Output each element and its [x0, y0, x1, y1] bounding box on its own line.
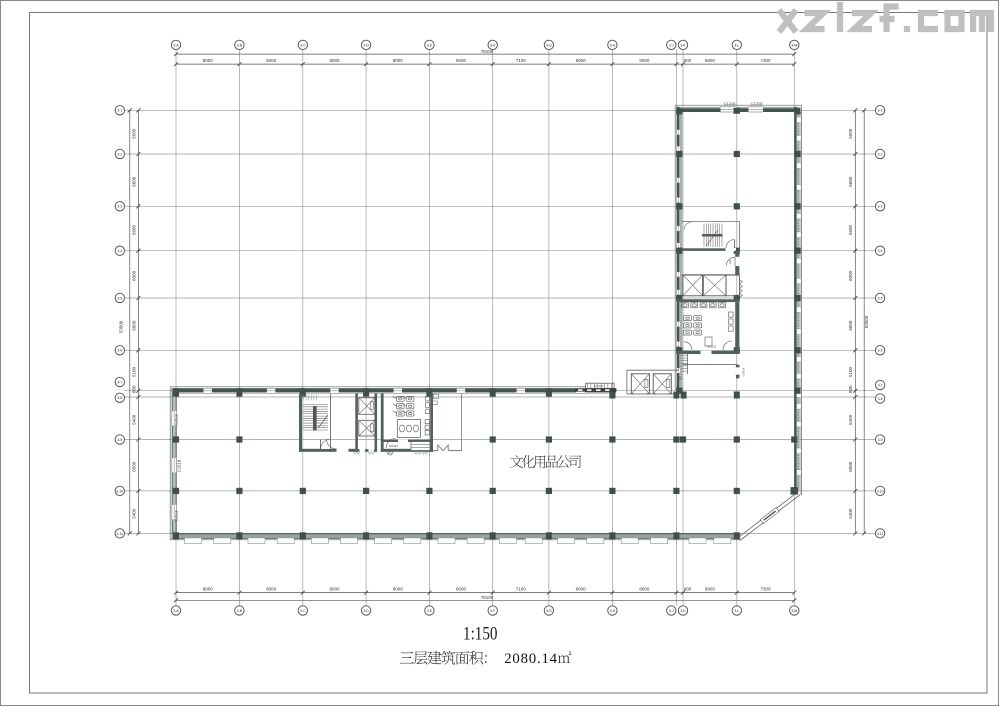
svg-text:3-J: 3-J: [669, 609, 674, 613]
svg-text:6800: 6800: [705, 587, 716, 592]
svg-text:3-10: 3-10: [877, 489, 884, 493]
svg-text:53500: 53500: [864, 315, 869, 328]
svg-text:C1518: C1518: [175, 510, 179, 521]
svg-text:3-8: 3-8: [117, 396, 122, 400]
svg-text:5400: 5400: [848, 508, 853, 519]
svg-text:3-C: 3-C: [300, 609, 306, 613]
svg-text:8000: 8000: [393, 58, 404, 63]
svg-text:3-11: 3-11: [877, 532, 884, 536]
svg-text:3-B: 3-B: [237, 609, 243, 613]
svg-text:3-C: 3-C: [300, 43, 306, 47]
svg-text:8000: 8000: [456, 58, 467, 63]
svg-text:3-L: 3-L: [734, 43, 739, 47]
svg-text:8000: 8000: [329, 58, 340, 63]
svg-text:M0921: M0921: [389, 444, 399, 448]
svg-text:3-A: 3-A: [173, 43, 179, 47]
svg-text:3-G: 3-G: [546, 43, 552, 47]
svg-text:8000: 8000: [456, 587, 467, 592]
svg-text:78100: 78100: [481, 595, 494, 600]
svg-text:5600: 5600: [848, 224, 853, 235]
svg-text:5400: 5400: [131, 414, 136, 425]
svg-text:3-F: 3-F: [490, 609, 495, 613]
svg-text:M1021: M1021: [594, 384, 604, 388]
svg-text:5500: 5500: [131, 128, 136, 139]
svg-text:5100: 5100: [848, 366, 853, 377]
svg-text:3-9: 3-9: [117, 438, 122, 442]
svg-text:900: 900: [684, 58, 692, 63]
svg-text:8000: 8000: [576, 587, 587, 592]
svg-text:8000: 8000: [266, 587, 277, 592]
svg-text:8000: 8000: [576, 58, 587, 63]
svg-text:7300: 7300: [760, 587, 771, 592]
svg-text:3-7: 3-7: [878, 383, 883, 387]
svg-text:1:150: 1:150: [463, 624, 498, 645]
svg-text:3-B: 3-B: [237, 43, 243, 47]
svg-text:3-E: 3-E: [427, 609, 433, 613]
svg-text:3-6: 3-6: [878, 349, 883, 353]
svg-text:8000: 8000: [393, 587, 404, 592]
svg-text:7300: 7300: [760, 58, 771, 63]
svg-text:3-H: 3-H: [610, 43, 616, 47]
svg-text:7100: 7100: [516, 587, 527, 592]
svg-text:C1218: C1218: [751, 101, 764, 106]
svg-text:6000: 6000: [848, 270, 853, 281]
svg-text:5600: 5600: [131, 224, 136, 235]
svg-text:3-H: 3-H: [610, 609, 616, 613]
svg-text:3-L: 3-L: [734, 609, 739, 613]
svg-text:5500: 5500: [848, 128, 853, 139]
svg-text:7100: 7100: [516, 58, 527, 63]
svg-text:53500: 53500: [119, 320, 124, 333]
svg-text:8000: 8000: [203, 58, 214, 63]
svg-text:3-M: 3-M: [791, 609, 797, 613]
svg-text:3-11: 3-11: [117, 532, 124, 536]
svg-text:6600: 6600: [131, 176, 136, 187]
svg-text:6500: 6500: [848, 461, 853, 472]
svg-text:C1518: C1518: [177, 459, 182, 472]
svg-text:3-G: 3-G: [546, 609, 552, 613]
svg-text:C1518: C1518: [175, 414, 179, 425]
svg-text:3-F: 3-F: [490, 43, 495, 47]
svg-text:3-A: 3-A: [173, 609, 179, 613]
svg-text:5400: 5400: [848, 414, 853, 425]
svg-text:3-1: 3-1: [878, 109, 883, 113]
svg-text:800: 800: [848, 385, 853, 393]
svg-text:3-J: 3-J: [669, 43, 674, 47]
svg-text:3-5: 3-5: [878, 296, 883, 300]
svg-text:3-5: 3-5: [117, 296, 122, 300]
svg-text:6000: 6000: [131, 270, 136, 281]
svg-text:800: 800: [131, 385, 136, 393]
svg-text:3-D: 3-D: [363, 43, 369, 47]
svg-text:3-4: 3-4: [878, 249, 883, 253]
svg-text:6600: 6600: [131, 320, 136, 331]
svg-text:6600: 6600: [848, 176, 853, 187]
svg-text:3-8: 3-8: [878, 397, 883, 401]
svg-text:3-K: 3-K: [680, 43, 686, 47]
svg-text:M1: M1: [728, 259, 732, 263]
svg-text:3-K: 3-K: [680, 609, 686, 613]
svg-text:6600: 6600: [848, 320, 853, 331]
svg-text:900: 900: [684, 587, 692, 592]
svg-text:6800: 6800: [705, 58, 716, 63]
svg-text:2080.14: 2080.14: [504, 651, 558, 667]
svg-text:C0924: C0924: [742, 367, 746, 376]
svg-text:8000: 8000: [329, 587, 340, 592]
svg-text:3-7: 3-7: [117, 380, 122, 384]
svg-text:3-4: 3-4: [117, 249, 122, 253]
svg-text:3-9: 3-9: [878, 438, 883, 442]
svg-text:8000: 8000: [639, 58, 650, 63]
svg-text:3-D: 3-D: [363, 609, 369, 613]
svg-text:6500: 6500: [131, 461, 136, 472]
svg-text:3-2: 3-2: [117, 152, 122, 156]
svg-text:3-10: 3-10: [116, 489, 123, 493]
svg-text:8000: 8000: [266, 58, 277, 63]
svg-text:5100: 5100: [131, 366, 136, 377]
svg-text:8000: 8000: [639, 587, 650, 592]
svg-text:3-M: 3-M: [791, 43, 797, 47]
svg-text:3-1: 3-1: [117, 109, 122, 113]
svg-text:3-E: 3-E: [427, 43, 433, 47]
svg-text:C1218: C1218: [724, 101, 737, 106]
svg-text:3-3: 3-3: [117, 205, 122, 209]
svg-text:3-2: 3-2: [878, 152, 883, 156]
svg-text:5400: 5400: [131, 508, 136, 519]
svg-text:M1021: M1021: [707, 345, 717, 349]
svg-text:3-3: 3-3: [878, 205, 883, 209]
svg-text:M1: M1: [679, 376, 683, 380]
svg-text:3-6: 3-6: [117, 349, 122, 353]
svg-text:8000: 8000: [203, 587, 214, 592]
